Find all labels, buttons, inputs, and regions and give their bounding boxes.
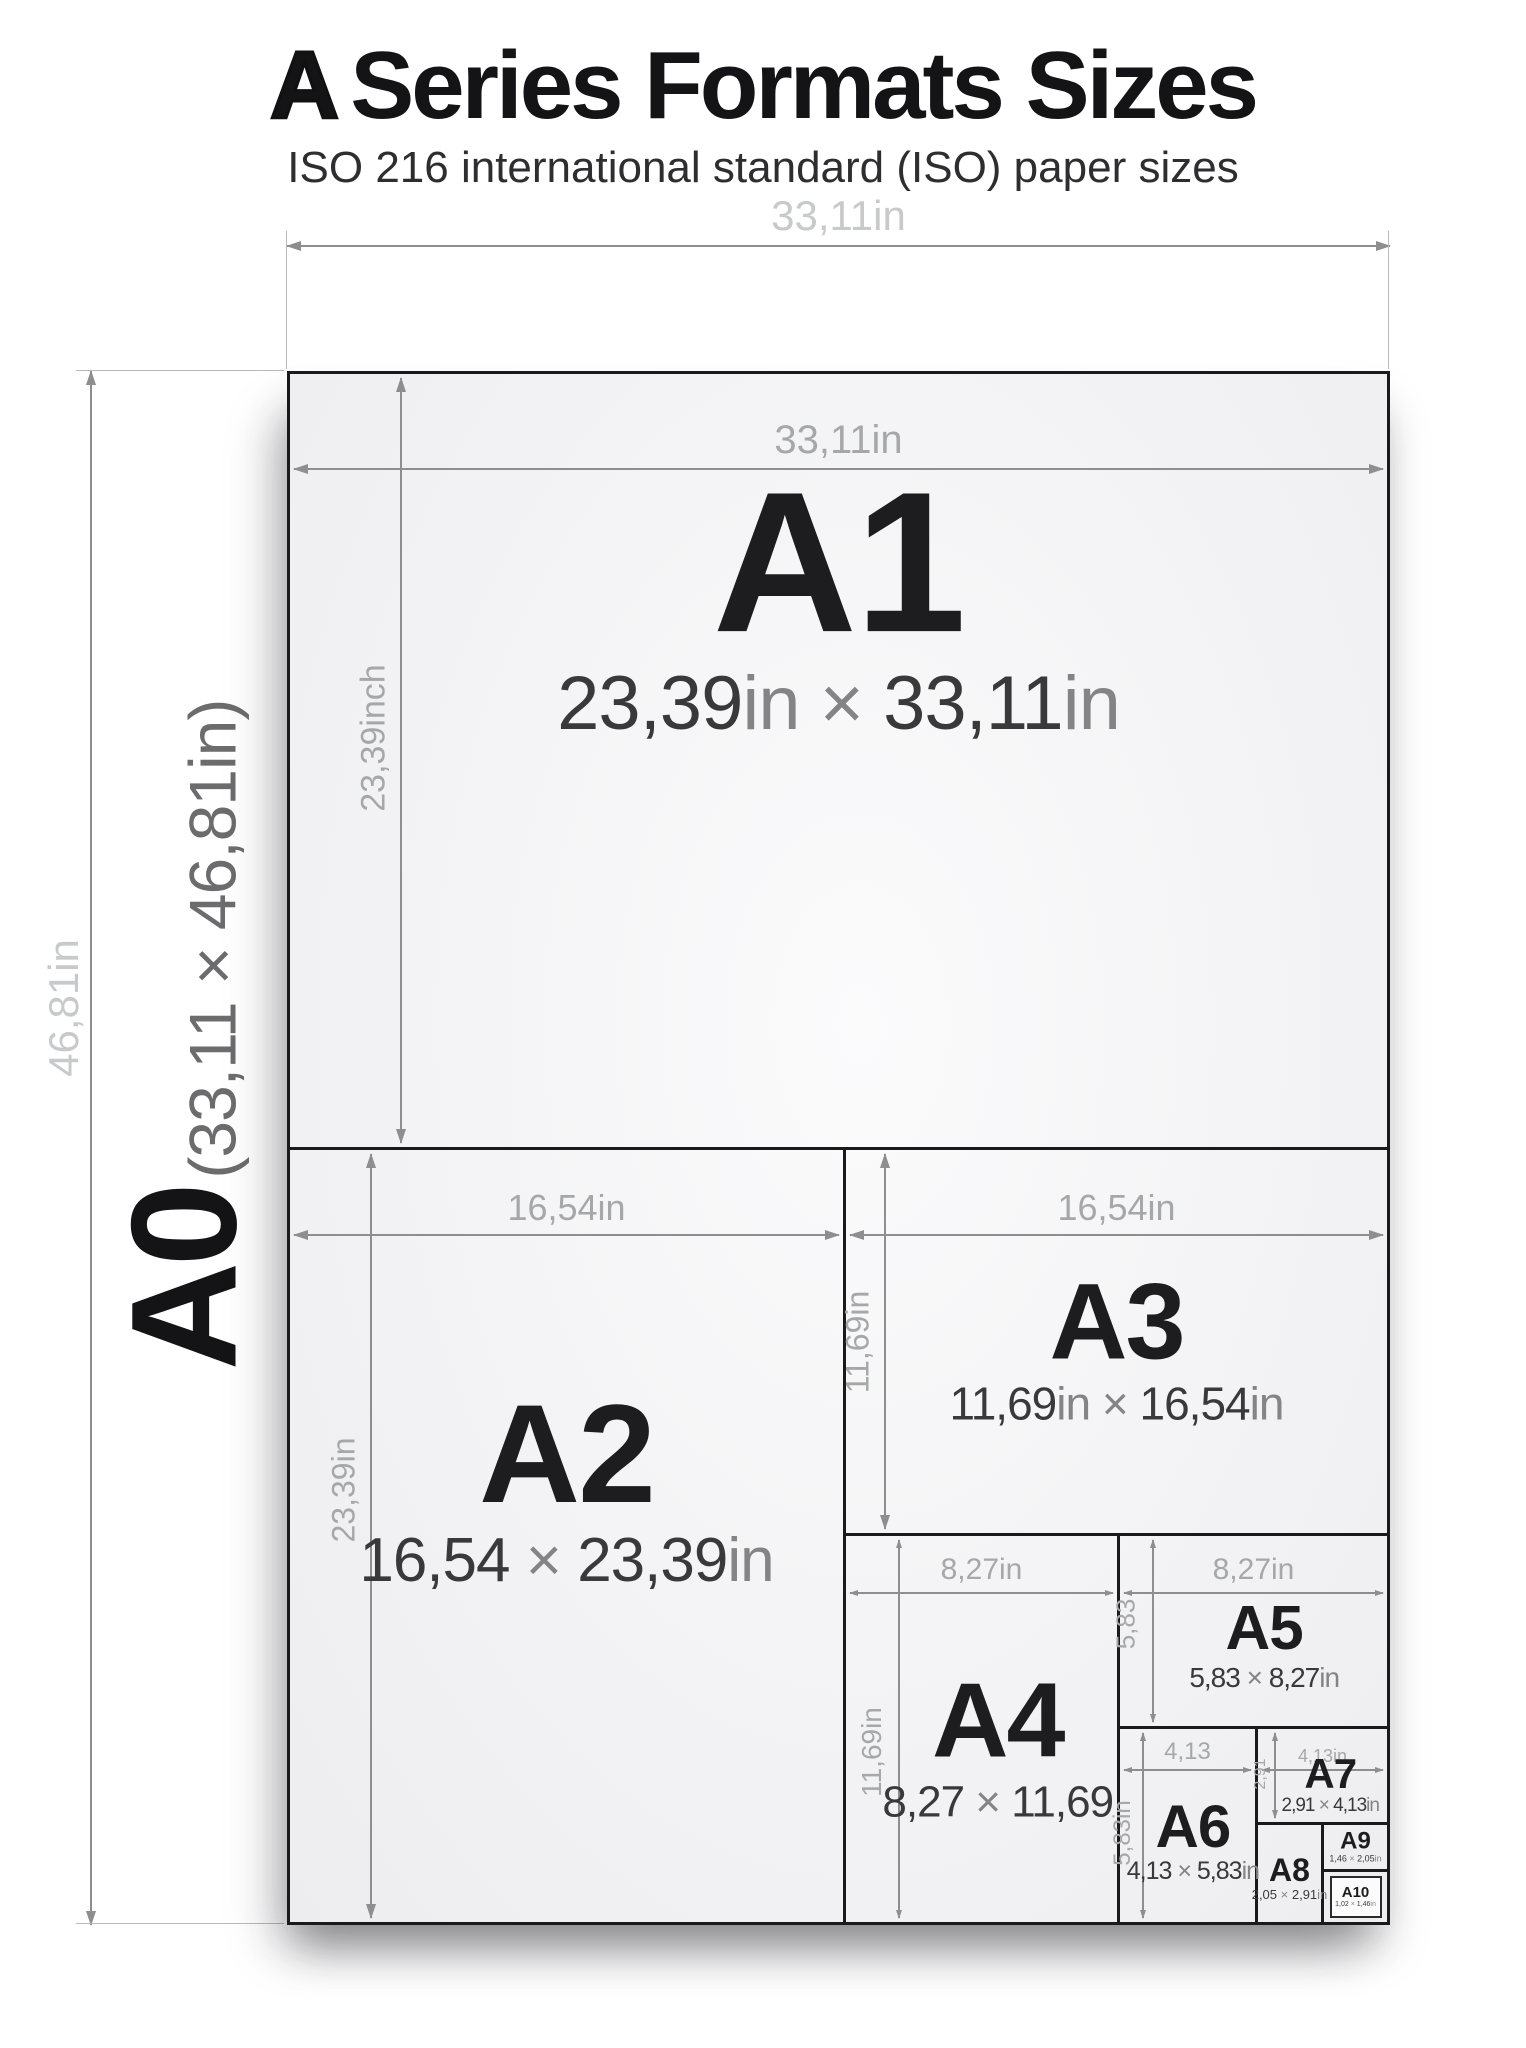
a7-height-arrow: 2,91: [1274, 1733, 1276, 1818]
a5-height-label: 5,83: [1111, 1598, 1142, 1649]
a10-dims: 1,02 × 1,46in: [1335, 1901, 1376, 1908]
a5-dims: 5,83 × 8,27in: [1189, 1663, 1339, 1692]
a3-dims: 11,69in × 16,54in: [950, 1379, 1284, 1427]
a5-width-arrow: 8,27in: [1124, 1592, 1383, 1594]
a1-dims: 23,39in × 33,11in: [557, 664, 1120, 744]
a2-dims: 16,54 × 23,39in: [359, 1528, 773, 1593]
a1-height-arrow: 23,39inch: [400, 378, 402, 1143]
a7-height-label: 2,91: [1252, 1758, 1270, 1789]
sheet-a2: 16,54in 23,39in A2 16,54 × 23,39in: [290, 1150, 846, 1922]
a0-label: A0: [98, 1187, 271, 1371]
a7-width-label: 4,13in: [1298, 1746, 1347, 1767]
a4-height-arrow: 11,69in: [898, 1540, 900, 1918]
a10-frame: A10 1,02 × 1,46in: [1330, 1876, 1382, 1918]
a1-label: A1: [713, 468, 965, 658]
a0-width-arrow: 33,11in: [287, 245, 1390, 247]
a3-height-label: 11,69in: [840, 1290, 877, 1393]
a0-dims: (33,11 × 46,81in): [175, 700, 251, 1179]
a2-width-arrow: 16,54in: [294, 1234, 839, 1236]
sheet-a6: 4,13 5,83in A6 4,13 × 5,83in: [1120, 1729, 1258, 1922]
a1-height-label: 23,39inch: [355, 664, 394, 811]
a0-width-label: 33,11in: [771, 192, 906, 240]
header: ASeries Formats Sizes ISO 216 internatio…: [0, 36, 1526, 193]
a6-dims: 4,13 × 5,83in: [1127, 1858, 1259, 1884]
sheet-a8: A8 2,05 × 2,91in: [1258, 1825, 1324, 1922]
dimension-extension-line: [1388, 231, 1389, 369]
a7-dims: 2,91 × 4,13in: [1282, 1796, 1379, 1816]
sheet-a10: A10 1,02 × 1,46in: [1324, 1872, 1387, 1922]
a3-width-arrow: 16,54in: [850, 1234, 1383, 1236]
a5-height-arrow: 5,83: [1152, 1540, 1154, 1722]
a0-caption: A0 (33,11 × 46,81in): [98, 700, 271, 1371]
page-subtitle: ISO 216 international standard (ISO) pap…: [0, 143, 1526, 193]
sheet-a4: 8,27in 11,69in A4 8,27 × 11,69: [846, 1536, 1120, 1922]
a2-height-arrow: 23,39in: [370, 1154, 372, 1918]
a8-label: A8: [1269, 1855, 1310, 1885]
a9-dims: 1,46 × 2,05in: [1329, 1854, 1381, 1863]
sheet-a1: 33,11in 23,39inch A1 23,39in × 33,11in: [290, 374, 1387, 1150]
sheet-a7: 4,13in 2,91 A7 2,91 × 4,13in: [1258, 1729, 1387, 1825]
a1-width-arrow: 33,11in: [294, 468, 1383, 470]
a10-label: A10: [1342, 1886, 1370, 1900]
sheet-a0: 33,11in 23,39inch A1 23,39in × 33,11in 1…: [287, 371, 1390, 1925]
a4-dims: 8,27 × 11,69: [882, 1780, 1113, 1826]
a6-label: A6: [1156, 1798, 1231, 1855]
page-title: ASeries Formats Sizes: [0, 36, 1526, 137]
a6-height-arrow: 5,83in: [1142, 1733, 1144, 1918]
sheet-a3: 16,54in 11,69in A3 11,69in × 16,54in: [846, 1150, 1387, 1536]
a5-label: A5: [1226, 1600, 1303, 1659]
sheet-a9: A9 1,46 × 2,05in: [1324, 1825, 1387, 1872]
a4-width-arrow: 8,27in: [850, 1592, 1113, 1594]
a5-width-label: 8,27in: [1213, 1553, 1295, 1587]
a4-height-label: 11,69in: [856, 1707, 888, 1797]
dimension-extension-line: [286, 231, 287, 369]
a8-dims: 2,05 × 2,91in: [1252, 1888, 1328, 1902]
a6-width-label: 4,13: [1164, 1738, 1211, 1766]
title-prefix: A: [270, 32, 336, 139]
a9-label: A9: [1340, 1830, 1371, 1853]
a2-label: A2: [479, 1387, 654, 1520]
a0-height-label: 46,81in: [40, 939, 88, 1077]
dimension-extension-line: [76, 1923, 284, 1924]
a3-width-label: 16,54in: [1057, 1187, 1175, 1229]
a2-width-label: 16,54in: [507, 1187, 625, 1229]
a0-height-arrow: 46,81in: [90, 371, 92, 1925]
a7-width-arrow: 4,13in: [1262, 1769, 1383, 1771]
a3-height-arrow: 11,69in: [884, 1154, 886, 1529]
sheet-a5: 8,27in 5,83 A5 5,83 × 8,27in: [1120, 1536, 1387, 1729]
title-text: Series Formats Sizes: [350, 32, 1256, 139]
a6-height-label: 5,83in: [1109, 1800, 1137, 1865]
dimension-extension-line: [76, 370, 284, 371]
a3-label: A3: [1049, 1271, 1183, 1374]
a2-height-label: 23,39in: [326, 1438, 363, 1543]
a4-label: A4: [932, 1671, 1064, 1772]
a4-width-label: 8,27in: [941, 1553, 1023, 1587]
infographic-page: ASeries Formats Sizes ISO 216 internatio…: [0, 0, 1526, 2048]
a1-width-label: 33,11in: [774, 418, 902, 463]
